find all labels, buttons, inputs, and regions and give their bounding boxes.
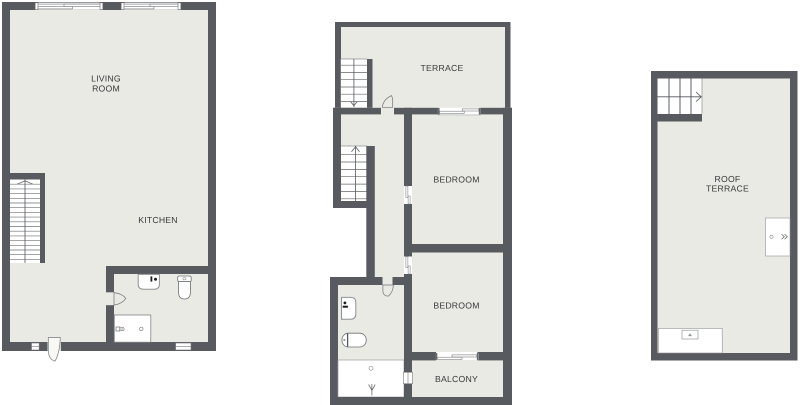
svg-text:ROOF: ROOF [715, 174, 741, 184]
svg-text:TERRACE: TERRACE [421, 63, 464, 73]
svg-text:ROOM: ROOM [92, 84, 120, 94]
svg-text:BEDROOM: BEDROOM [433, 175, 479, 185]
svg-text:KITCHEN: KITCHEN [138, 215, 178, 225]
svg-text:BEDROOM: BEDROOM [433, 301, 479, 311]
svg-text:LIVING: LIVING [91, 74, 121, 84]
svg-text:TERRACE: TERRACE [706, 184, 749, 194]
svg-text:BALCONY: BALCONY [435, 374, 478, 384]
